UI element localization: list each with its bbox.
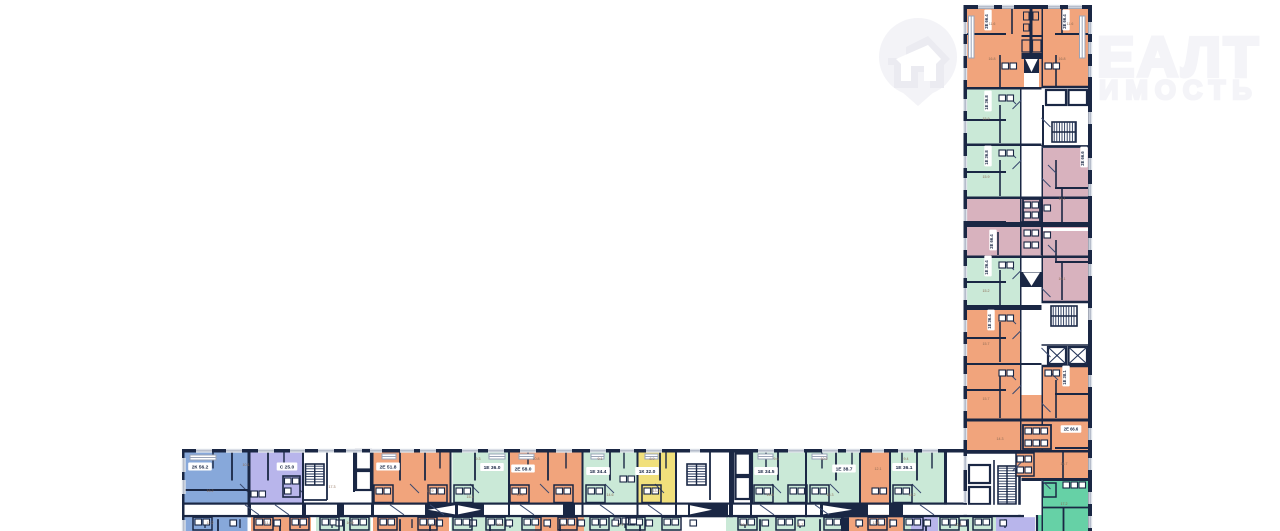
svg-text:1Е 36.4: 1Е 36.4 [987, 314, 992, 329]
svg-text:14.8: 14.8 [767, 493, 774, 497]
svg-text:11.2: 11.2 [427, 523, 434, 527]
svg-text:2Е 58.0: 2Е 58.0 [515, 466, 532, 472]
svg-text:С 25.0: С 25.0 [280, 464, 295, 470]
svg-text:15.2: 15.2 [983, 289, 990, 293]
svg-text:10.8: 10.8 [533, 457, 540, 461]
svg-text:11.4: 11.4 [561, 523, 568, 527]
svg-text:11.8: 11.8 [265, 521, 272, 525]
svg-text:14.6: 14.6 [607, 493, 614, 497]
svg-text:13.6: 13.6 [873, 521, 880, 525]
svg-text:12.2: 12.2 [207, 521, 214, 525]
svg-text:16.4: 16.4 [517, 493, 524, 497]
svg-text:1Е 36.8: 1Е 36.8 [984, 150, 989, 165]
svg-text:9.4: 9.4 [904, 457, 909, 461]
svg-text:11.6: 11.6 [989, 22, 996, 26]
svg-text:15.7: 15.7 [983, 342, 990, 346]
svg-text:15.9: 15.9 [983, 175, 990, 179]
svg-text:14.9: 14.9 [427, 489, 434, 493]
svg-text:16.7: 16.7 [1061, 462, 1068, 466]
svg-text:11.7: 11.7 [797, 523, 804, 527]
svg-text:2Е 51.8: 2Е 51.8 [380, 464, 397, 470]
svg-text:12.6: 12.6 [497, 523, 504, 527]
svg-text:15.3: 15.3 [827, 493, 834, 497]
svg-text:12.1: 12.1 [617, 523, 624, 527]
svg-text:16.8: 16.8 [1059, 57, 1066, 61]
svg-text:1Е 38.7: 1Е 38.7 [836, 466, 853, 472]
svg-text:2Е 66.6: 2Е 66.6 [1064, 427, 1079, 432]
svg-text:2Е 66.4: 2Е 66.4 [989, 234, 994, 249]
svg-text:16.2: 16.2 [207, 489, 214, 493]
svg-text:8.9: 8.9 [650, 457, 655, 461]
svg-text:10.8: 10.8 [955, 523, 962, 527]
svg-text:1Е 38.1: 1Е 38.1 [1062, 370, 1067, 385]
svg-text:12.1: 12.1 [875, 467, 882, 471]
svg-text:13.2: 13.2 [653, 489, 660, 493]
svg-text:ИМОСТЬ: ИМОСТЬ [1099, 75, 1259, 105]
svg-text:17.2: 17.2 [1061, 502, 1068, 506]
svg-text:1Е 36.4: 1Е 36.4 [984, 260, 989, 275]
svg-text:1Е 36.8: 1Е 36.8 [984, 95, 989, 110]
svg-text:1К 32.0: 1К 32.0 [639, 469, 656, 475]
svg-text:15.7: 15.7 [983, 397, 990, 401]
svg-text:1Е 34.4: 1Е 34.4 [590, 469, 607, 475]
svg-text:17.3: 17.3 [329, 485, 336, 489]
svg-text:10.2: 10.2 [821, 457, 828, 461]
svg-text:2К 56.2: 2К 56.2 [192, 464, 209, 470]
svg-text:11.6: 11.6 [1067, 22, 1074, 26]
svg-text:16.8: 16.8 [989, 57, 996, 61]
svg-text:9.1: 9.1 [598, 457, 603, 461]
svg-text:14.2: 14.2 [909, 493, 916, 497]
svg-text:12.4: 12.4 [741, 523, 748, 527]
svg-text:14.3: 14.3 [997, 437, 1004, 441]
svg-text:1Е 36.1: 1Е 36.1 [896, 465, 913, 471]
svg-text:10.1: 10.1 [243, 463, 250, 467]
svg-text:15.1: 15.1 [467, 495, 474, 499]
svg-text:16.1: 16.1 [1059, 277, 1066, 281]
svg-text:1Е 34.5: 1Е 34.5 [758, 469, 775, 475]
svg-text:2Е 66.6: 2Е 66.6 [1080, 151, 1085, 166]
svg-text:16.1: 16.1 [1059, 197, 1066, 201]
svg-text:10.9: 10.9 [347, 521, 354, 525]
svg-text:1Е 36.0: 1Е 36.0 [484, 465, 501, 471]
svg-text:9.6: 9.6 [774, 457, 779, 461]
svg-text:9.3: 9.3 [476, 457, 481, 461]
svg-text:15.9: 15.9 [983, 117, 990, 121]
